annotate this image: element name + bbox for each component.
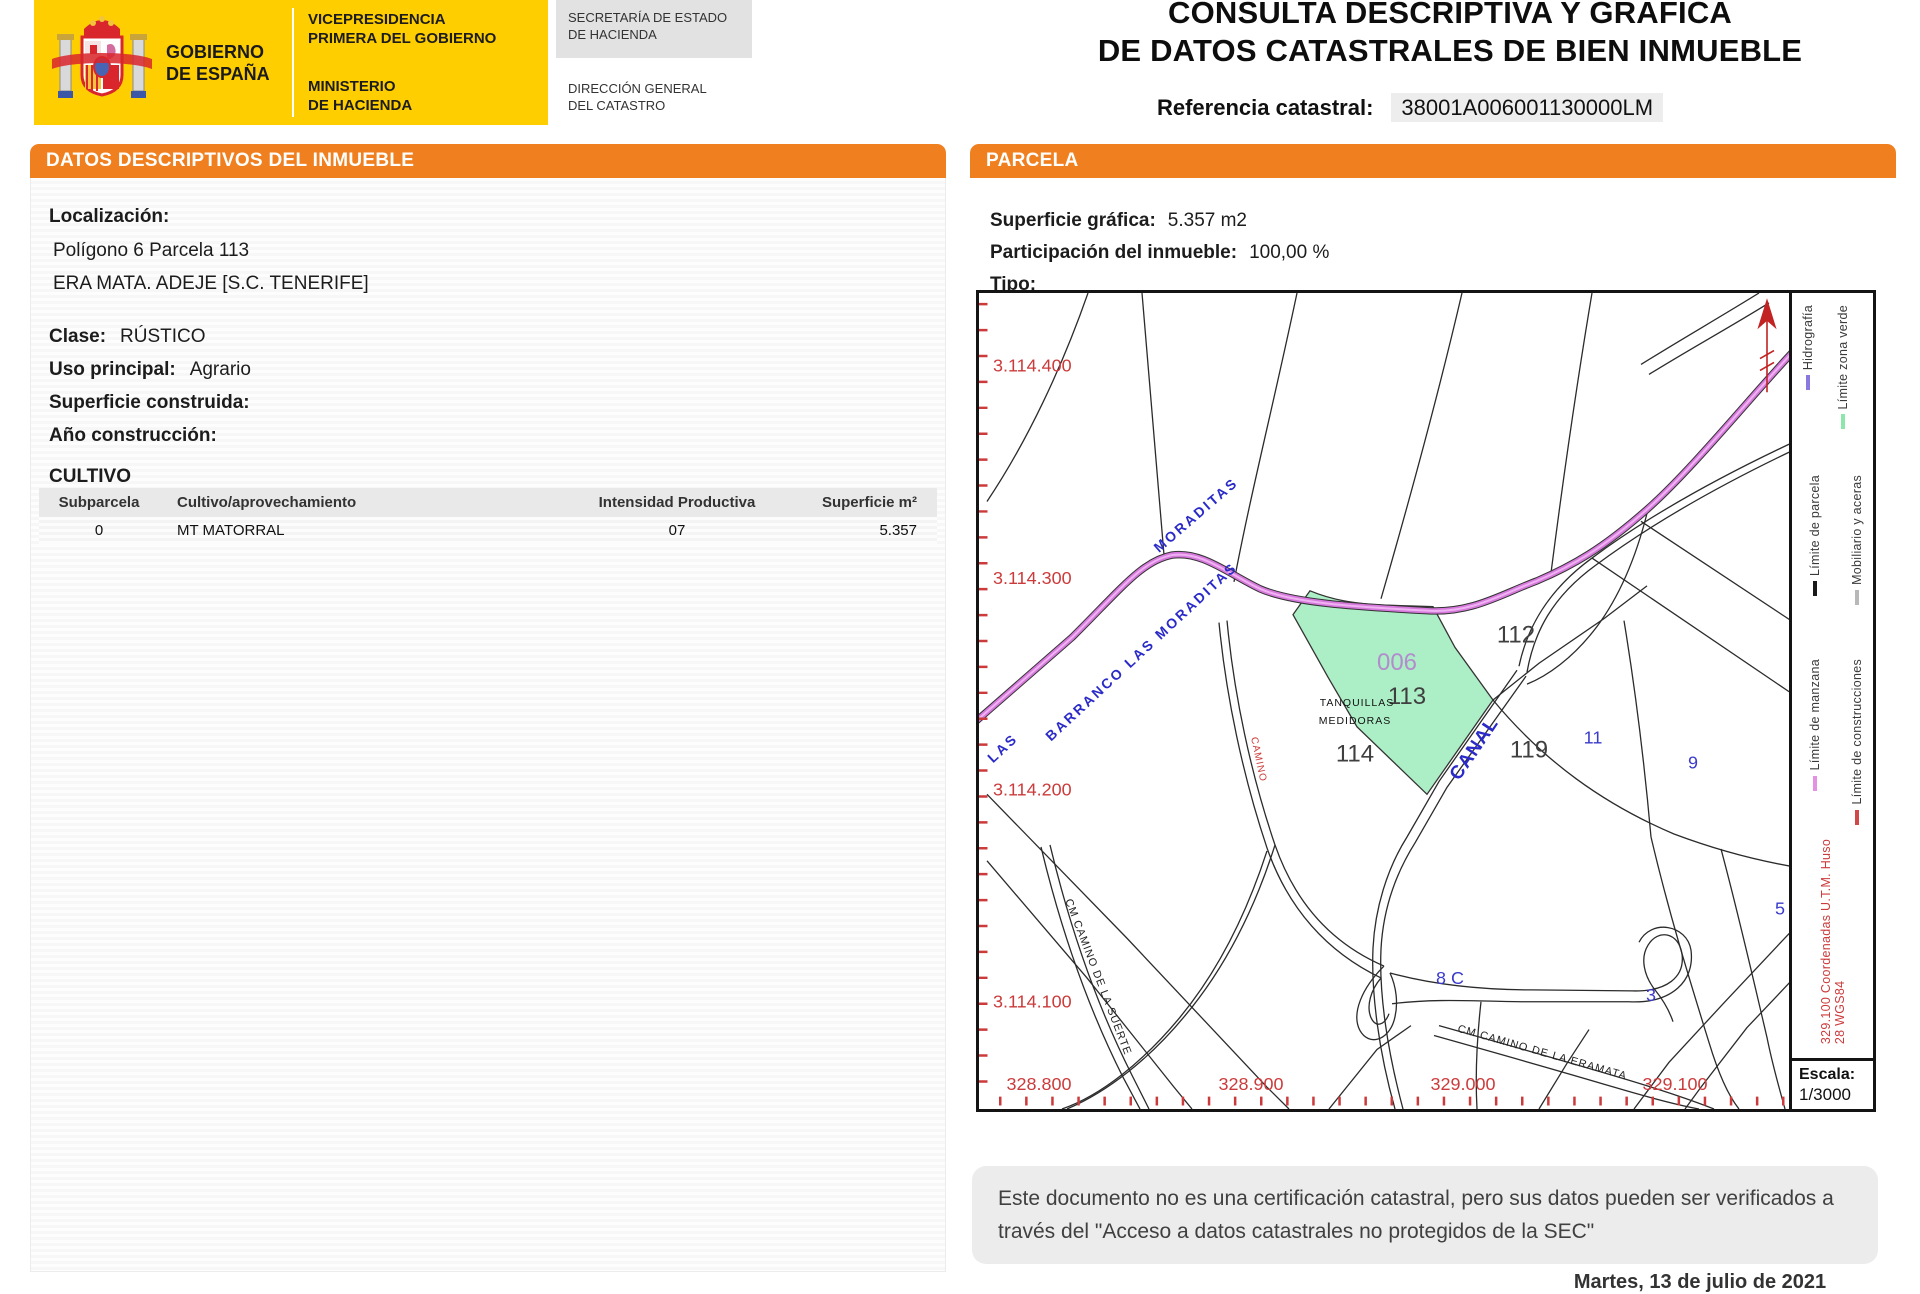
document-title: CONSULTA DESCRIPTIVA Y GRÁFICA DE DATOS …: [1010, 0, 1890, 70]
clase-field: Clase:RÚSTICO: [49, 326, 206, 348]
disclaimer-box: Este documento no es una certificación c…: [972, 1166, 1878, 1264]
ministerio-block: VICEPRESIDENCIA PRIMERA DEL GOBIERNO MIN…: [292, 8, 496, 117]
disclaimer-line1: Este documento no es una certificación c…: [998, 1182, 1852, 1215]
camino-red-label: CAMINO: [1248, 736, 1268, 783]
x-label-1: 328.800: [1006, 1074, 1071, 1094]
legend-hidrografia: Hidrografía: [1801, 305, 1815, 390]
ministerio-label: MINISTERIO DE HACIENDA: [308, 77, 496, 115]
superficie-construida-field: Superficie construida:: [49, 392, 264, 414]
subparcel-006: 006: [1377, 649, 1417, 676]
site-label-medidoras: MEDIDORAS: [1319, 716, 1392, 727]
vicepresidencia-label: VICEPRESIDENCIA PRIMERA DEL GOBIERNO: [308, 10, 496, 48]
parcela-header: PARCELA: [970, 144, 1896, 178]
site-label-tanquillas: TANQUILLAS: [1320, 698, 1395, 709]
col-superficie: Superficie m²: [787, 494, 937, 511]
legend-row-3: Límite de manzana Límite de construccion…: [1794, 659, 1871, 824]
x-label-3: 329.000: [1430, 1074, 1495, 1094]
localizacion-line1: Polígono 6 Parcela 113: [53, 240, 249, 262]
hidrografia-swatch-icon: [1806, 375, 1810, 390]
legend-row-2: Límite de parcela Mobiliario y aceras: [1794, 475, 1871, 605]
y-label-1: 3.114.400: [993, 355, 1072, 375]
cultivo-title: CULTIVO: [49, 466, 131, 488]
escala-value: 1/3000: [1799, 1085, 1866, 1105]
table-row: 0 MT MATORRAL 07 5.357: [39, 517, 937, 544]
blue-label-9: 9: [1688, 753, 1698, 773]
escala-label: Escala:: [1799, 1065, 1866, 1085]
zona-verde-swatch-icon: [1841, 414, 1845, 429]
parcel-119: 119: [1510, 737, 1548, 764]
legend-limite-parcela: Límite de parcela: [1794, 475, 1836, 596]
barranco-label: BARRANCO LAS MORADITAS: [1042, 559, 1240, 744]
legend-mobiliario: Mobiliario y aceras: [1843, 475, 1871, 605]
col-subparcela: Subparcela: [39, 494, 159, 511]
map-drawing: 3.114.400 3.114.300 3.114.200 3.114.100 …: [979, 293, 1789, 1109]
x-label-4: 329.100: [1642, 1074, 1707, 1094]
y-label-2: 3.114.300: [993, 568, 1072, 588]
document-date: Martes, 13 de julio de 2021: [1500, 1271, 1900, 1294]
blue-label-3: 3: [1646, 985, 1656, 1005]
legend-zona-verde: Límite zona verde: [1822, 305, 1864, 429]
map-canvas: 3.114.400 3.114.300 3.114.200 3.114.100 …: [979, 293, 1789, 1109]
localizacion-label: Localización:: [49, 206, 169, 228]
parcel-112: 112: [1497, 622, 1535, 649]
superficie-grafica-field: Superficie gráfica:5.357 m2: [990, 210, 1247, 232]
las-label: LAS: [984, 730, 1021, 766]
y-label-4: 3.114.100: [993, 992, 1072, 1012]
localizacion-line2: ERA MATA. ADEJE [S.C. TENERIFE]: [53, 273, 369, 295]
referencia-label: Referencia catastral:: [1157, 95, 1373, 120]
cultivo-table-header: Subparcela Cultivo/aprovechamiento Inten…: [39, 488, 937, 517]
spain-coat-of-arms: [50, 7, 154, 119]
uso-principal-field: Uso principal:Agrario: [49, 359, 251, 381]
blue-label-5: 5: [1775, 898, 1785, 918]
cadastral-map: 3.114.400 3.114.300 3.114.200 3.114.100 …: [976, 290, 1876, 1112]
blue-label-11: 11: [1584, 728, 1603, 748]
referencia-catastral: Referencia catastral:38001A006001130000L…: [1010, 95, 1810, 121]
datos-descriptivos-panel: DATOS DESCRIPTIVOS DEL INMUEBLE Localiza…: [30, 144, 946, 1272]
col-cultivo: Cultivo/aprovechamiento: [159, 494, 567, 511]
disclaimer-line2: través del "Acceso a datos catastrales n…: [998, 1215, 1852, 1248]
gobierno-title: GOBIERNO DE ESPAÑA: [166, 41, 282, 85]
y-label-3: 3.114.200: [993, 779, 1072, 799]
direccion-general-label: DIRECCIÓN GENERAL DEL CATASTRO: [568, 80, 707, 114]
cultivo-table: Subparcela Cultivo/aprovechamiento Inten…: [39, 488, 937, 544]
parcel-114: 114: [1336, 741, 1374, 768]
legend-limite-manzana: Límite de manzana: [1794, 659, 1836, 790]
escala-box: Escala: 1/3000: [1792, 1058, 1873, 1109]
referencia-value: 38001A006001130000LM: [1391, 93, 1663, 122]
datos-descriptivos-header: DATOS DESCRIPTIVOS DEL INMUEBLE: [30, 144, 946, 178]
x-label-2: 328.900: [1218, 1074, 1283, 1094]
limite-parcela-swatch-icon: [1813, 581, 1817, 596]
col-intensidad: Intensidad Productiva: [567, 494, 787, 511]
camino-suerte-label: CM CAMINO DE LA SUERTE: [1062, 897, 1133, 1057]
mobiliario-swatch-icon: [1855, 590, 1859, 605]
map-labels: 112 006 113 TANQUILLAS MEDIDORAS 114 119…: [984, 474, 1785, 1082]
legend-row-1: Hidrografía Límite zona verde: [1801, 305, 1864, 429]
anio-construccion-field: Año construcción:: [49, 425, 231, 447]
construcciones-swatch-icon: [1855, 810, 1859, 825]
blue-label-8c: 8 C: [1436, 968, 1464, 988]
legend-construcciones: Límite de construcciones: [1843, 659, 1871, 824]
gobierno-logo-block: GOBIERNO DE ESPAÑA VICEPRESIDENCIA PRIME…: [34, 0, 548, 125]
limite-manzana-swatch-icon: [1813, 776, 1817, 791]
participacion-field: Participación del inmueble:100,00 %: [990, 242, 1329, 264]
utm-note: 329.100 Coordenadas U.T.M. Huso 28 WGS84: [1819, 825, 1847, 1044]
map-legend: Hidrografía Límite zona verde Límite de …: [1789, 293, 1873, 1109]
moraditas-label: MORADITAS: [1150, 474, 1241, 555]
secretaria-box: SECRETARÍA DE ESTADO DE HACIENDA: [556, 0, 752, 58]
